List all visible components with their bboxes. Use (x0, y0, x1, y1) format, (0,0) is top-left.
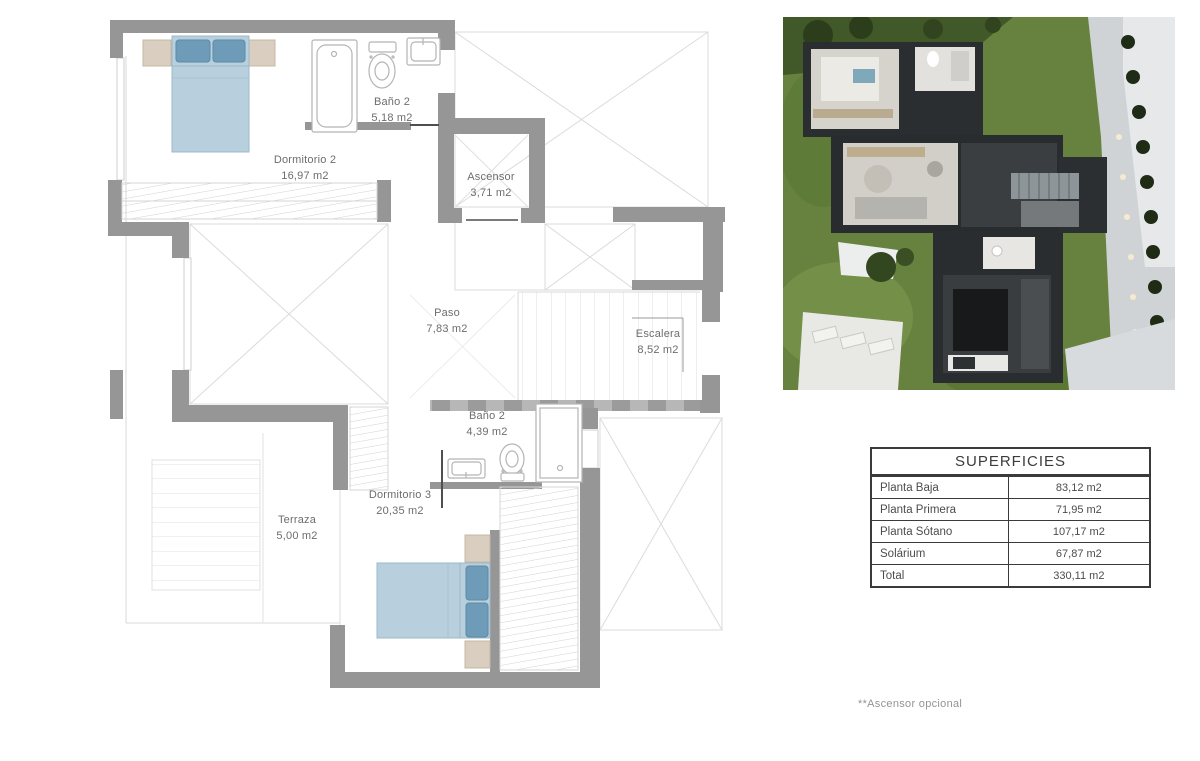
row-label: Solárium (872, 543, 1008, 564)
table-row: Solárium 67,87 m2 (872, 542, 1149, 564)
nightstand (465, 641, 490, 668)
elevator-wall (438, 118, 545, 134)
row-label: Total (872, 565, 1008, 586)
nightstand (143, 40, 171, 66)
room-label-dormitorio3: Dormitorio 320,35 m2 (369, 487, 431, 519)
room-label-dormitorio2: Dormitorio 216,97 m2 (274, 152, 336, 184)
room-label-paso: Paso7,83 m2 (426, 305, 467, 337)
room-label-bano2-lower: Baño 24,39 m2 (466, 408, 507, 440)
pillow (176, 40, 210, 62)
toilet-tank (369, 42, 396, 52)
room-label-bano2-top: Baño 25,18 m2 (371, 94, 412, 126)
table-row: Total 330,11 m2 (872, 564, 1149, 586)
row-value: 71,95 m2 (1008, 499, 1149, 520)
row-label: Planta Baja (872, 477, 1008, 498)
room-label-escalera: Escalera8,52 m2 (636, 326, 680, 358)
nightstand (465, 535, 490, 562)
footnote-ascensor-opcional: **Ascensor opcional (858, 698, 962, 710)
room-label-terraza: Terraza5,00 m2 (276, 512, 317, 544)
row-value: 107,17 m2 (1008, 521, 1149, 542)
table-row: Planta Baja 83,12 m2 (872, 476, 1149, 498)
room-label-ascensor: Ascensor3,71 m2 (467, 169, 514, 201)
render-3d-top-view (783, 17, 1175, 390)
row-label: Planta Primera (872, 499, 1008, 520)
row-value: 330,11 m2 (1008, 565, 1149, 586)
row-value: 67,87 m2 (1008, 543, 1149, 564)
table-title: SUPERFICIES (872, 449, 1149, 476)
pillow (466, 566, 488, 600)
floor-plan-drawing (60, 15, 770, 715)
pillow (213, 40, 245, 62)
table-row: Planta Primera 71,95 m2 (872, 498, 1149, 520)
superficies-table: SUPERFICIES Planta Baja 83,12 m2 Planta … (870, 447, 1151, 588)
pillow (466, 603, 488, 637)
terrace-slats (152, 460, 260, 590)
row-label: Planta Sótano (872, 521, 1008, 542)
bed-dormitorio2 (143, 36, 275, 152)
bed-dormitorio3 (377, 535, 490, 668)
table-row: Planta Sótano 107,17 m2 (872, 520, 1149, 542)
nightstand (249, 40, 275, 66)
row-value: 83,12 m2 (1008, 477, 1149, 498)
toilet-tank (501, 473, 524, 481)
